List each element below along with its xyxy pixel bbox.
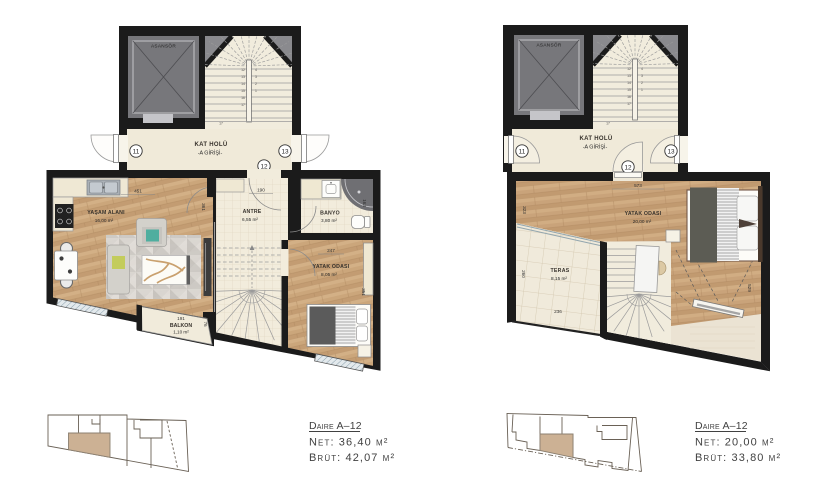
svg-text:11: 11 [133, 148, 140, 155]
svg-text:11: 11 [519, 148, 526, 155]
svg-text:Daire A–12: Daire A–12 [309, 420, 362, 432]
svg-text:KAT HOLÜ: KAT HOLÜ [195, 141, 228, 148]
svg-text:8,15 m²: 8,15 m² [551, 276, 567, 281]
svg-text:Daire A–12: Daire A–12 [695, 420, 748, 432]
svg-text:Brüt: 33,80 m²: Brüt: 33,80 m² [695, 452, 781, 464]
svg-text:236: 236 [554, 309, 562, 314]
svg-text:16: 16 [627, 95, 631, 99]
svg-text:4: 4 [255, 68, 257, 72]
svg-text:3,80 m²: 3,80 m² [321, 218, 337, 223]
svg-text:260: 260 [521, 270, 526, 278]
svg-text:ANTRE: ANTRE [243, 209, 262, 215]
svg-text:573: 573 [634, 183, 642, 188]
svg-text:191: 191 [177, 316, 185, 321]
svg-text:15: 15 [241, 89, 245, 93]
svg-text:163: 163 [362, 199, 367, 207]
svg-text:17: 17 [219, 122, 223, 126]
svg-text:361: 361 [201, 203, 206, 211]
svg-text:6,55 m²: 6,55 m² [242, 217, 258, 222]
svg-text:8,05 m²: 8,05 m² [321, 272, 337, 277]
svg-text:451: 451 [134, 189, 142, 194]
svg-text:ASANSÖR: ASANSÖR [536, 42, 561, 48]
svg-text:12: 12 [627, 67, 631, 71]
svg-text:BANYO: BANYO [320, 211, 340, 217]
svg-text:TERAS: TERAS [550, 268, 569, 274]
svg-text:4: 4 [641, 67, 643, 71]
svg-text:14: 14 [627, 81, 631, 85]
svg-text:1: 1 [641, 88, 643, 92]
svg-text:13: 13 [281, 148, 289, 155]
svg-text:Net: 20,00 m²: Net: 20,00 m² [695, 437, 775, 449]
svg-text:Net: 36,40 m²: Net: 36,40 m² [309, 437, 389, 449]
svg-text:1,10 m²: 1,10 m² [173, 330, 189, 335]
svg-text:BALKON: BALKON [170, 323, 192, 329]
svg-text:YAŞAM ALANI: YAŞAM ALANI [87, 210, 125, 216]
svg-text:12: 12 [241, 68, 245, 72]
svg-text:12: 12 [624, 164, 632, 171]
svg-text:14: 14 [241, 82, 245, 86]
svg-text:ASANSÖR: ASANSÖR [151, 43, 176, 49]
svg-text:1: 1 [255, 89, 257, 93]
svg-text:2: 2 [641, 81, 643, 85]
svg-text:3: 3 [255, 75, 257, 79]
svg-text:13: 13 [667, 148, 675, 155]
svg-text:76: 76 [203, 321, 208, 327]
svg-text:17: 17 [627, 102, 631, 106]
svg-text:16: 16 [241, 96, 245, 100]
svg-text:15: 15 [627, 88, 631, 92]
svg-text:13: 13 [627, 74, 631, 78]
svg-text:Brüt: 42,07 m²: Brüt: 42,07 m² [309, 452, 395, 464]
svg-text:16,00 m²: 16,00 m² [95, 218, 114, 223]
svg-text:351: 351 [361, 288, 366, 296]
svg-text:529: 529 [747, 284, 752, 292]
svg-text:13: 13 [241, 75, 245, 79]
svg-text:17: 17 [241, 103, 245, 107]
svg-text:323: 323 [522, 206, 527, 214]
svg-text:247: 247 [327, 248, 335, 253]
svg-text:17: 17 [606, 122, 610, 126]
svg-text:YATAK ODASI: YATAK ODASI [313, 264, 350, 270]
svg-text:190: 190 [257, 188, 265, 193]
svg-text:-A GİRİŞİ-: -A GİRİŞİ- [198, 150, 223, 157]
svg-text:-A GİRİŞİ-: -A GİRİŞİ- [583, 144, 608, 151]
svg-text:2: 2 [255, 82, 257, 86]
svg-text:KAT HOLÜ: KAT HOLÜ [580, 135, 613, 142]
svg-text:3: 3 [641, 74, 643, 78]
svg-text:YATAK ODASI: YATAK ODASI [625, 211, 662, 217]
svg-text:20,00 m²: 20,00 m² [633, 219, 652, 224]
